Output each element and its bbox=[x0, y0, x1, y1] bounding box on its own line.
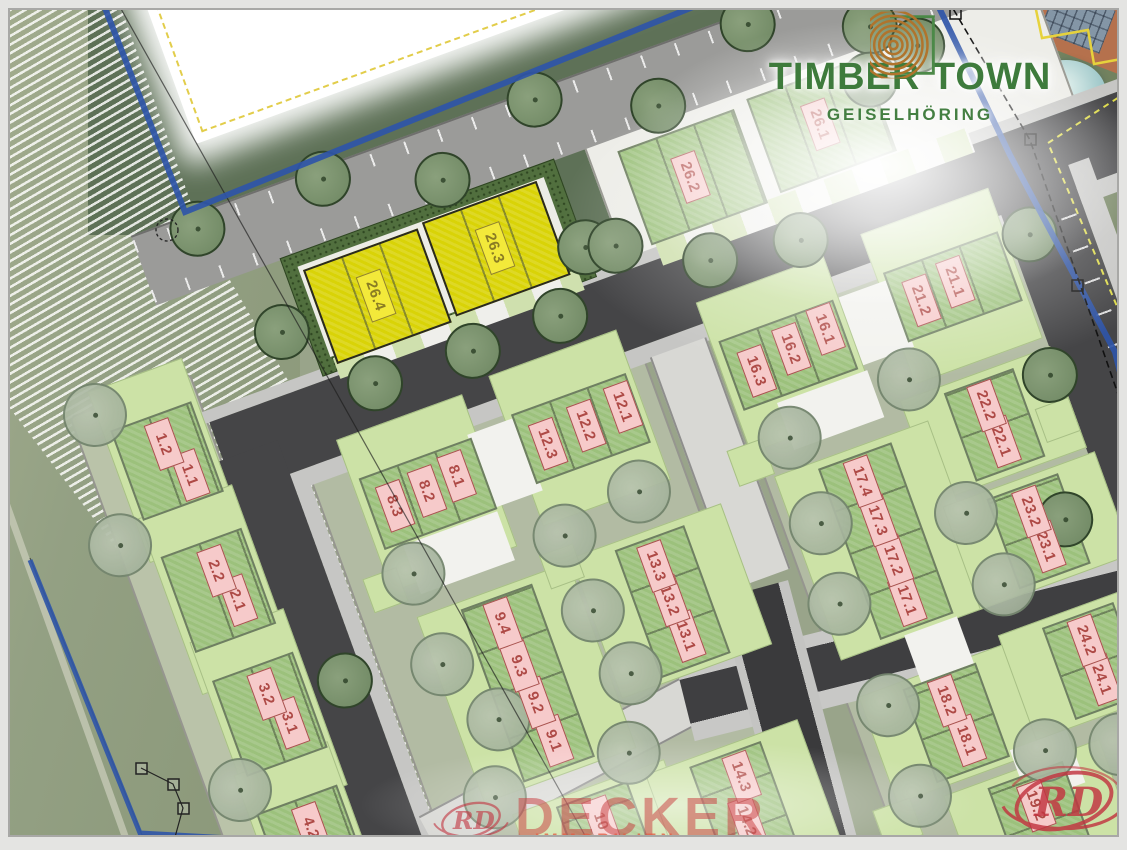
site-plan-map: 1.11.22.12.23.13.24.28.18.28.39.19.29.39… bbox=[0, 0, 1127, 850]
agency-tagline: IMMOBILIEN - BAUTRÄGER bbox=[465, 830, 765, 850]
project-logo: TIMBER TOWN GEISELHÖRING bbox=[740, 56, 1080, 125]
wood-rings-icon bbox=[868, 10, 942, 80]
agency-monogram-icon: RD bbox=[986, 758, 1127, 844]
agency-monogram: RD bbox=[1033, 778, 1103, 826]
agency-watermark: RD DECKER IMMOBILIEN - BAUTRÄGER bbox=[415, 770, 975, 850]
development-plan: 1.11.22.12.23.13.24.28.18.28.39.19.29.39… bbox=[0, 0, 1127, 850]
project-subtitle: GEISELHÖRING bbox=[740, 105, 1080, 125]
